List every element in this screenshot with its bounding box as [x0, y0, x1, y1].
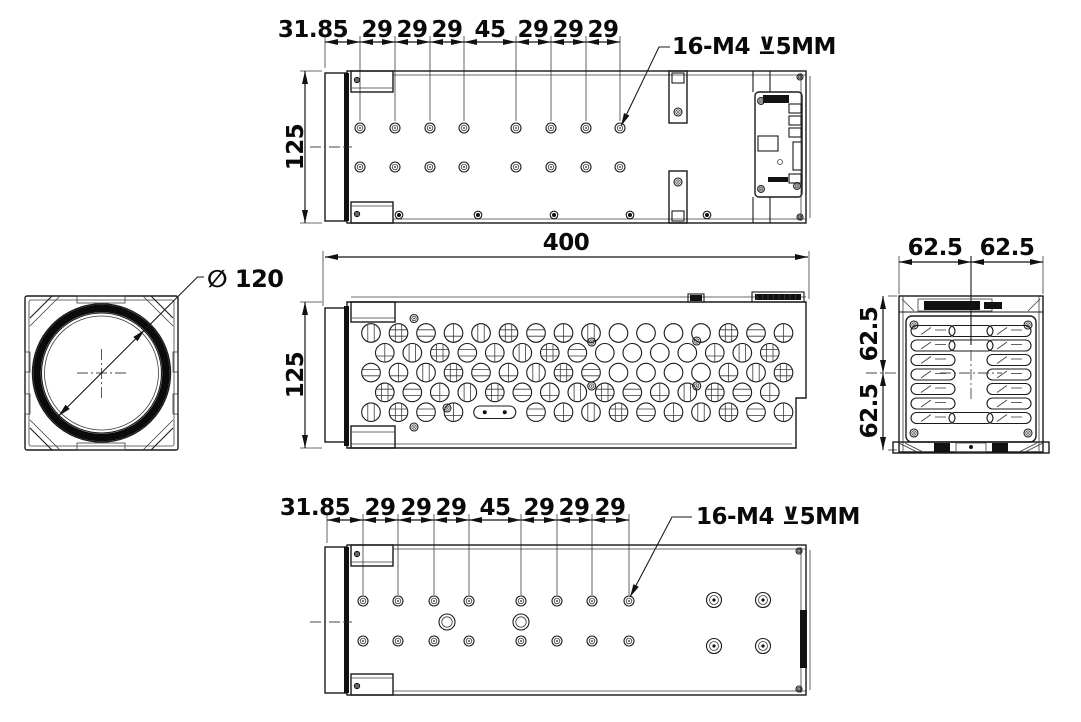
vent-hole	[403, 344, 422, 363]
vent-hole	[362, 363, 381, 382]
screw-hole-center	[799, 216, 801, 218]
edge-line	[921, 400, 931, 407]
vent-hole	[637, 363, 656, 382]
screw-hole-center	[696, 385, 698, 387]
dim-arrow	[350, 517, 363, 523]
mount-foot	[992, 443, 1008, 452]
edge-line	[921, 371, 931, 378]
front-face-edge	[344, 547, 349, 693]
vent-hole	[541, 344, 560, 363]
edge-line	[921, 386, 931, 393]
side-height-dim: 125	[283, 352, 309, 399]
engineering-drawing: 31.85 29 29 29 45 29 29 29 16-M4 ⊻5MM 12…	[0, 0, 1081, 722]
bottom-view	[310, 514, 810, 695]
edge-clip	[77, 296, 125, 303]
vent-hole	[458, 383, 477, 402]
rect	[672, 73, 684, 83]
vent-hole	[376, 383, 395, 402]
vent-slot	[911, 369, 955, 380]
edge-line	[997, 386, 1007, 393]
screw-hole-center	[397, 600, 399, 602]
bottom-chain-dim-7: 29	[558, 495, 589, 521]
screw-hole-center	[556, 640, 558, 642]
vent-hole	[596, 344, 615, 363]
dim-arrow	[302, 302, 308, 315]
pilot-hole-inner	[516, 617, 526, 627]
top-height-dim: 125	[283, 124, 309, 171]
vent-hole	[582, 403, 601, 422]
top-thread-callout: 16-M4 ⊻5MM	[672, 34, 836, 60]
edge-line	[1028, 299, 1040, 311]
lens-hood-flange	[325, 308, 347, 442]
pilot-hole-inner	[442, 617, 452, 627]
top-chain-dim-6: 29	[517, 17, 548, 43]
edge-line	[997, 415, 1007, 422]
vent-hole	[719, 403, 738, 422]
screw-hole-center	[677, 111, 679, 113]
circle	[503, 410, 507, 414]
vent-hole	[568, 383, 587, 402]
bottom-chain-dim-5: 45	[479, 495, 510, 521]
vent-hole	[417, 324, 436, 343]
vent-hole	[596, 383, 615, 402]
vent-slot	[911, 340, 955, 351]
screw-hole-center	[356, 213, 358, 215]
screw-hole-center	[394, 166, 396, 168]
bottom-thread-callout: 16-M4 ⊻5MM	[696, 504, 860, 530]
rear-top-dim-2: 62.5	[980, 235, 1035, 261]
screw-hole-center	[394, 127, 396, 129]
screw-hole-center	[515, 166, 517, 168]
screw-hole-center	[413, 318, 415, 320]
vent-hole	[692, 403, 711, 422]
edge-line	[997, 357, 1007, 364]
vent-hole	[444, 363, 463, 382]
vent-hole	[678, 383, 697, 402]
side-connector	[800, 610, 807, 668]
screw-hole-center	[359, 127, 361, 129]
screw-hole-center	[799, 76, 801, 78]
circle	[778, 160, 783, 165]
rear-connector	[984, 302, 1002, 309]
vent-hole	[692, 324, 711, 343]
vent-hole	[692, 363, 711, 382]
vent-hole	[362, 403, 381, 422]
side-view	[300, 251, 809, 448]
obround-slot	[474, 406, 516, 419]
vent-hole	[472, 363, 491, 382]
vent-hole	[637, 403, 656, 422]
screw-hole-center	[585, 166, 587, 168]
vent-hole	[527, 324, 546, 343]
edge-line	[921, 415, 931, 422]
vent-hole	[678, 344, 697, 363]
screw-hole-center	[550, 127, 552, 129]
vent-hole	[582, 363, 601, 382]
screw-hole-center	[520, 600, 522, 602]
rect	[690, 295, 702, 301]
vent-slot	[987, 398, 1031, 409]
dim-arrow	[302, 435, 308, 448]
rear-side-dim-1: 62.5	[857, 307, 883, 362]
vent-slot	[987, 384, 1031, 395]
io-port	[789, 128, 801, 137]
vent-slot	[911, 413, 955, 424]
screw-hole-center	[628, 600, 630, 602]
circle	[712, 598, 715, 601]
top-chain-dim-2: 29	[361, 17, 392, 43]
leader-line	[630, 517, 692, 597]
screw-hole-center	[446, 407, 448, 409]
rear-connector	[924, 301, 980, 310]
vent-hole	[747, 403, 766, 422]
top-body-outline	[347, 71, 806, 223]
vent-hole	[431, 344, 450, 363]
small-screw-dot	[628, 213, 632, 217]
rear-side-dim-2: 62.5	[857, 384, 883, 439]
front-face-edge	[344, 306, 349, 446]
edge-clip	[77, 443, 125, 450]
vent-hole	[554, 363, 573, 382]
vent-hole	[417, 403, 436, 422]
vent-hole	[499, 324, 518, 343]
top-view	[300, 36, 810, 223]
top-chain-dim-4: 29	[431, 17, 462, 43]
bottom-chain-dim-8: 29	[594, 495, 625, 521]
dim-arrow	[795, 254, 808, 260]
vent-hole	[733, 383, 752, 402]
io-port	[789, 116, 801, 125]
screw-hole-center	[798, 688, 800, 690]
screw-hole-center	[429, 127, 431, 129]
vent-slot	[911, 355, 955, 366]
vent-hole	[664, 324, 683, 343]
screw-hole-center	[468, 600, 470, 602]
screw-hole-center	[591, 385, 593, 387]
screw-hole-center	[515, 127, 517, 129]
edge-line	[997, 328, 1007, 335]
edge-line	[997, 371, 1007, 378]
corner-notch	[351, 302, 395, 322]
vent-hole	[527, 363, 546, 382]
screw-hole-center	[356, 79, 358, 81]
top-chain-dim-5: 45	[474, 17, 505, 43]
side-length-dim: 400	[543, 230, 590, 256]
screw-hole-center	[433, 600, 435, 602]
rect	[755, 294, 801, 300]
screw-hole-center	[463, 127, 465, 129]
screw-hole-center	[628, 640, 630, 642]
small-screw-dot	[476, 213, 480, 217]
mount-foot	[934, 443, 950, 452]
edge-line	[902, 299, 914, 311]
vent-hole	[623, 383, 642, 402]
screw-hole-center	[619, 166, 621, 168]
diameter-dim-line	[58, 277, 204, 416]
screw-hole-center	[677, 181, 679, 183]
front-diameter-dim: ∅ 120	[207, 265, 284, 293]
io-port	[789, 174, 801, 183]
screw-hole-center	[468, 640, 470, 642]
vent-hole	[568, 344, 587, 363]
edge-line	[921, 357, 931, 364]
screw-hole-center	[550, 166, 552, 168]
vent-hole	[609, 403, 628, 422]
bottom-chain-dim-3: 29	[400, 495, 431, 521]
small-screw-dot	[705, 213, 709, 217]
vent-slot	[987, 369, 1031, 380]
screw-hole-center	[520, 640, 522, 642]
vent-hole	[513, 383, 532, 402]
screw-hole-center	[362, 600, 364, 602]
dim-arrow	[302, 71, 308, 84]
vent-hole	[472, 324, 491, 343]
top-chain-dim-8: 29	[587, 17, 618, 43]
vent-hole	[417, 363, 436, 382]
edge-line	[921, 342, 931, 349]
bottom-chain-dim-6: 29	[523, 495, 554, 521]
screw-hole-center	[796, 185, 798, 187]
screw-hole-center	[433, 640, 435, 642]
screw-hole-center	[591, 341, 593, 343]
vent-slot	[987, 413, 1031, 424]
vent-hole	[747, 363, 766, 382]
bottom-body-outline	[347, 545, 806, 695]
circle	[712, 644, 715, 647]
vent-hole	[389, 324, 408, 343]
vent-hole	[664, 363, 683, 382]
edge-line	[997, 342, 1007, 349]
circle	[761, 644, 764, 647]
vent-hole	[609, 324, 628, 343]
db-connector	[758, 136, 778, 151]
screw-hole-center	[696, 340, 698, 342]
dim-arrow	[347, 39, 360, 45]
vent-hole	[527, 403, 546, 422]
vent-hole	[761, 344, 780, 363]
screw-hole-center	[359, 166, 361, 168]
edge-line	[921, 328, 931, 335]
vent-hole	[403, 383, 422, 402]
small-screw-dot	[552, 213, 556, 217]
screw-hole-center	[591, 600, 593, 602]
screw-hole-center	[585, 127, 587, 129]
vent-slot	[911, 384, 955, 395]
top-chain-dim-1: 31.85	[278, 17, 348, 43]
screw-hole-center	[760, 100, 762, 102]
screw-hole-center	[591, 640, 593, 642]
rect	[672, 211, 684, 221]
front-view	[25, 277, 204, 450]
vent-hole	[651, 344, 670, 363]
screw-hole-center	[429, 166, 431, 168]
screw-hole-center	[463, 166, 465, 168]
vent-hole	[719, 324, 738, 343]
lens-hood-flange	[325, 547, 347, 693]
vent-hole	[458, 344, 477, 363]
circle	[761, 598, 764, 601]
bottom-chain-dim-1: 31.85	[280, 495, 350, 521]
drawing-sheet: 31.85 29 29 29 45 29 29 29 16-M4 ⊻5MM 12…	[0, 0, 1081, 722]
circle	[483, 410, 487, 414]
vent-hole	[609, 363, 628, 382]
screw-hole-center	[619, 127, 621, 129]
pcb-connector	[763, 95, 789, 103]
screw-hole-center	[413, 426, 415, 428]
vent-slot	[987, 355, 1031, 366]
bottom-chain-dim-4: 29	[435, 495, 466, 521]
top-chain-dim-3: 29	[396, 17, 427, 43]
vent-hole	[513, 344, 532, 363]
vent-slot	[911, 398, 955, 409]
vent-hole	[706, 383, 725, 402]
vent-hole	[774, 363, 793, 382]
rear-top-dim-1: 62.5	[908, 235, 963, 261]
vent-hole	[389, 403, 408, 422]
circle	[969, 445, 973, 449]
vent-hole	[623, 344, 642, 363]
io-port	[789, 104, 801, 113]
vent-hole	[733, 344, 752, 363]
vent-hole	[637, 324, 656, 343]
bottom-chain-dim-2: 29	[364, 495, 395, 521]
corner-notch	[351, 426, 395, 448]
pcb-connector	[768, 177, 788, 182]
vent-hole	[362, 324, 381, 343]
edge-line	[997, 400, 1007, 407]
screw-hole-center	[356, 553, 358, 555]
small-screw-dot	[397, 213, 401, 217]
screw-hole-center	[1027, 432, 1029, 434]
vent-slot	[987, 340, 1031, 351]
screw-hole-center	[356, 685, 358, 687]
leader-line	[621, 47, 670, 126]
vent-hole	[747, 324, 766, 343]
top-chain-dim-7: 29	[552, 17, 583, 43]
screw-hole-center	[362, 640, 364, 642]
dim-arrow	[325, 254, 338, 260]
rear-view	[866, 256, 1049, 453]
screw-hole-center	[913, 432, 915, 434]
vent-hole	[486, 383, 505, 402]
screw-hole-center	[760, 188, 762, 190]
screw-hole-center	[556, 600, 558, 602]
screw-hole-center	[798, 550, 800, 552]
dim-arrow	[302, 210, 308, 223]
vent-slot	[949, 413, 993, 424]
screw-hole-center	[397, 640, 399, 642]
